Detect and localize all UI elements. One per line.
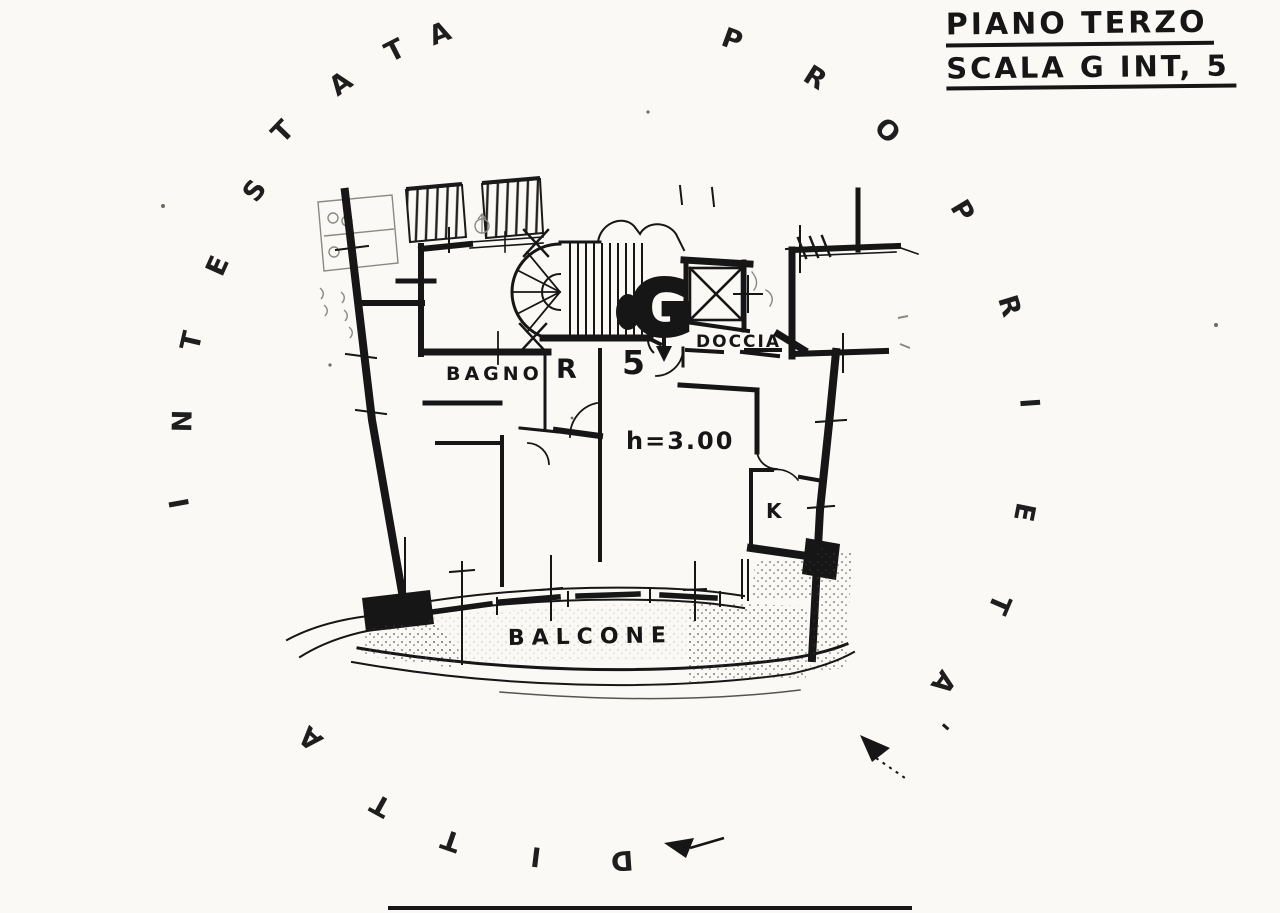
label-altezza: h=3.00 [626, 427, 734, 455]
arrow-left-icon [664, 838, 724, 858]
elevator-shaft [684, 260, 750, 331]
interior-partitions [425, 350, 777, 585]
neighbour-hatched-rooms [406, 178, 543, 242]
arrow-upleft-icon [860, 735, 905, 778]
stair-letter-g: G [631, 266, 692, 352]
door-arc [772, 469, 798, 480]
scan-speckles [161, 110, 1218, 419]
label-cucina-k: K [766, 499, 783, 523]
page-edge-line [388, 906, 912, 910]
annotation-arrows [664, 735, 905, 858]
label-bagno: BAGNO [446, 363, 543, 385]
label-interno-5: 5 [622, 343, 645, 382]
door-arc [528, 443, 549, 464]
label-balcone: BALCONE [508, 623, 674, 651]
door-arc [656, 352, 683, 376]
door-arc [757, 452, 777, 469]
balcony [287, 538, 854, 699]
label-ripostiglio: R [556, 354, 577, 385]
floor-plan-svg: G [0, 0, 1280, 913]
scanned-floorplan-page: PIANO TERZO SCALA G INT, 5 INTESTATAPROP… [0, 0, 1280, 913]
label-doccia: DOCCIA [696, 332, 781, 352]
